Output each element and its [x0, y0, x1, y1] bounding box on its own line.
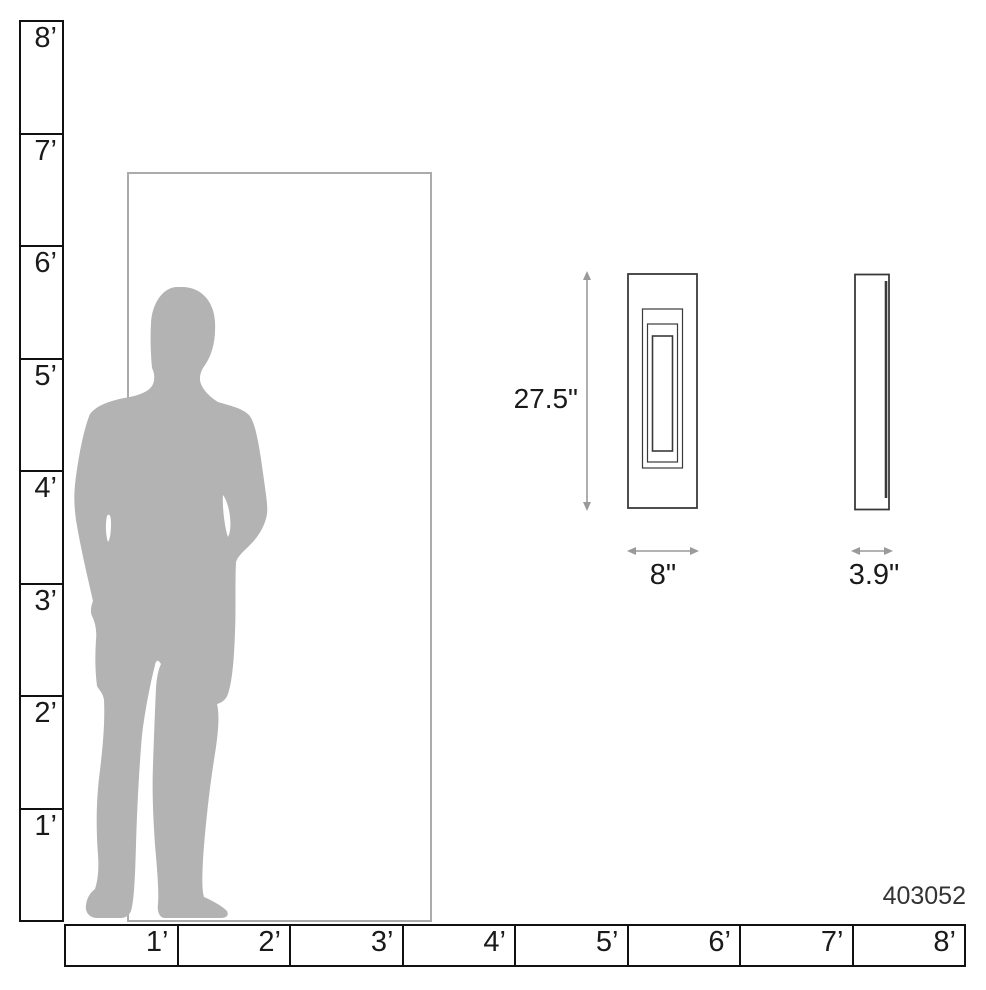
- height-dimension-arrow: [583, 271, 591, 511]
- sconce-side-body: [855, 275, 889, 510]
- diagram-drawing: [0, 0, 986, 990]
- size-comparison-diagram: { "ruler": { "vertical_labels": ["8’", "…: [0, 0, 986, 990]
- depth-dimension-label: 3.9": [838, 560, 910, 592]
- width-dimension-arrow: [627, 547, 699, 555]
- height-dimension-label: 27.5": [498, 384, 578, 415]
- person-body-shape: [74, 287, 267, 918]
- sconce-front-view: [628, 274, 697, 508]
- sconce-front-lens: [653, 336, 673, 451]
- width-dimension-label: 8": [628, 560, 698, 592]
- person-silhouette: [74, 287, 267, 918]
- sconce-side-view: [855, 275, 889, 510]
- product-number: 403052: [866, 882, 966, 911]
- sconce-front-frame: [643, 309, 683, 468]
- depth-dimension-arrow: [851, 547, 893, 555]
